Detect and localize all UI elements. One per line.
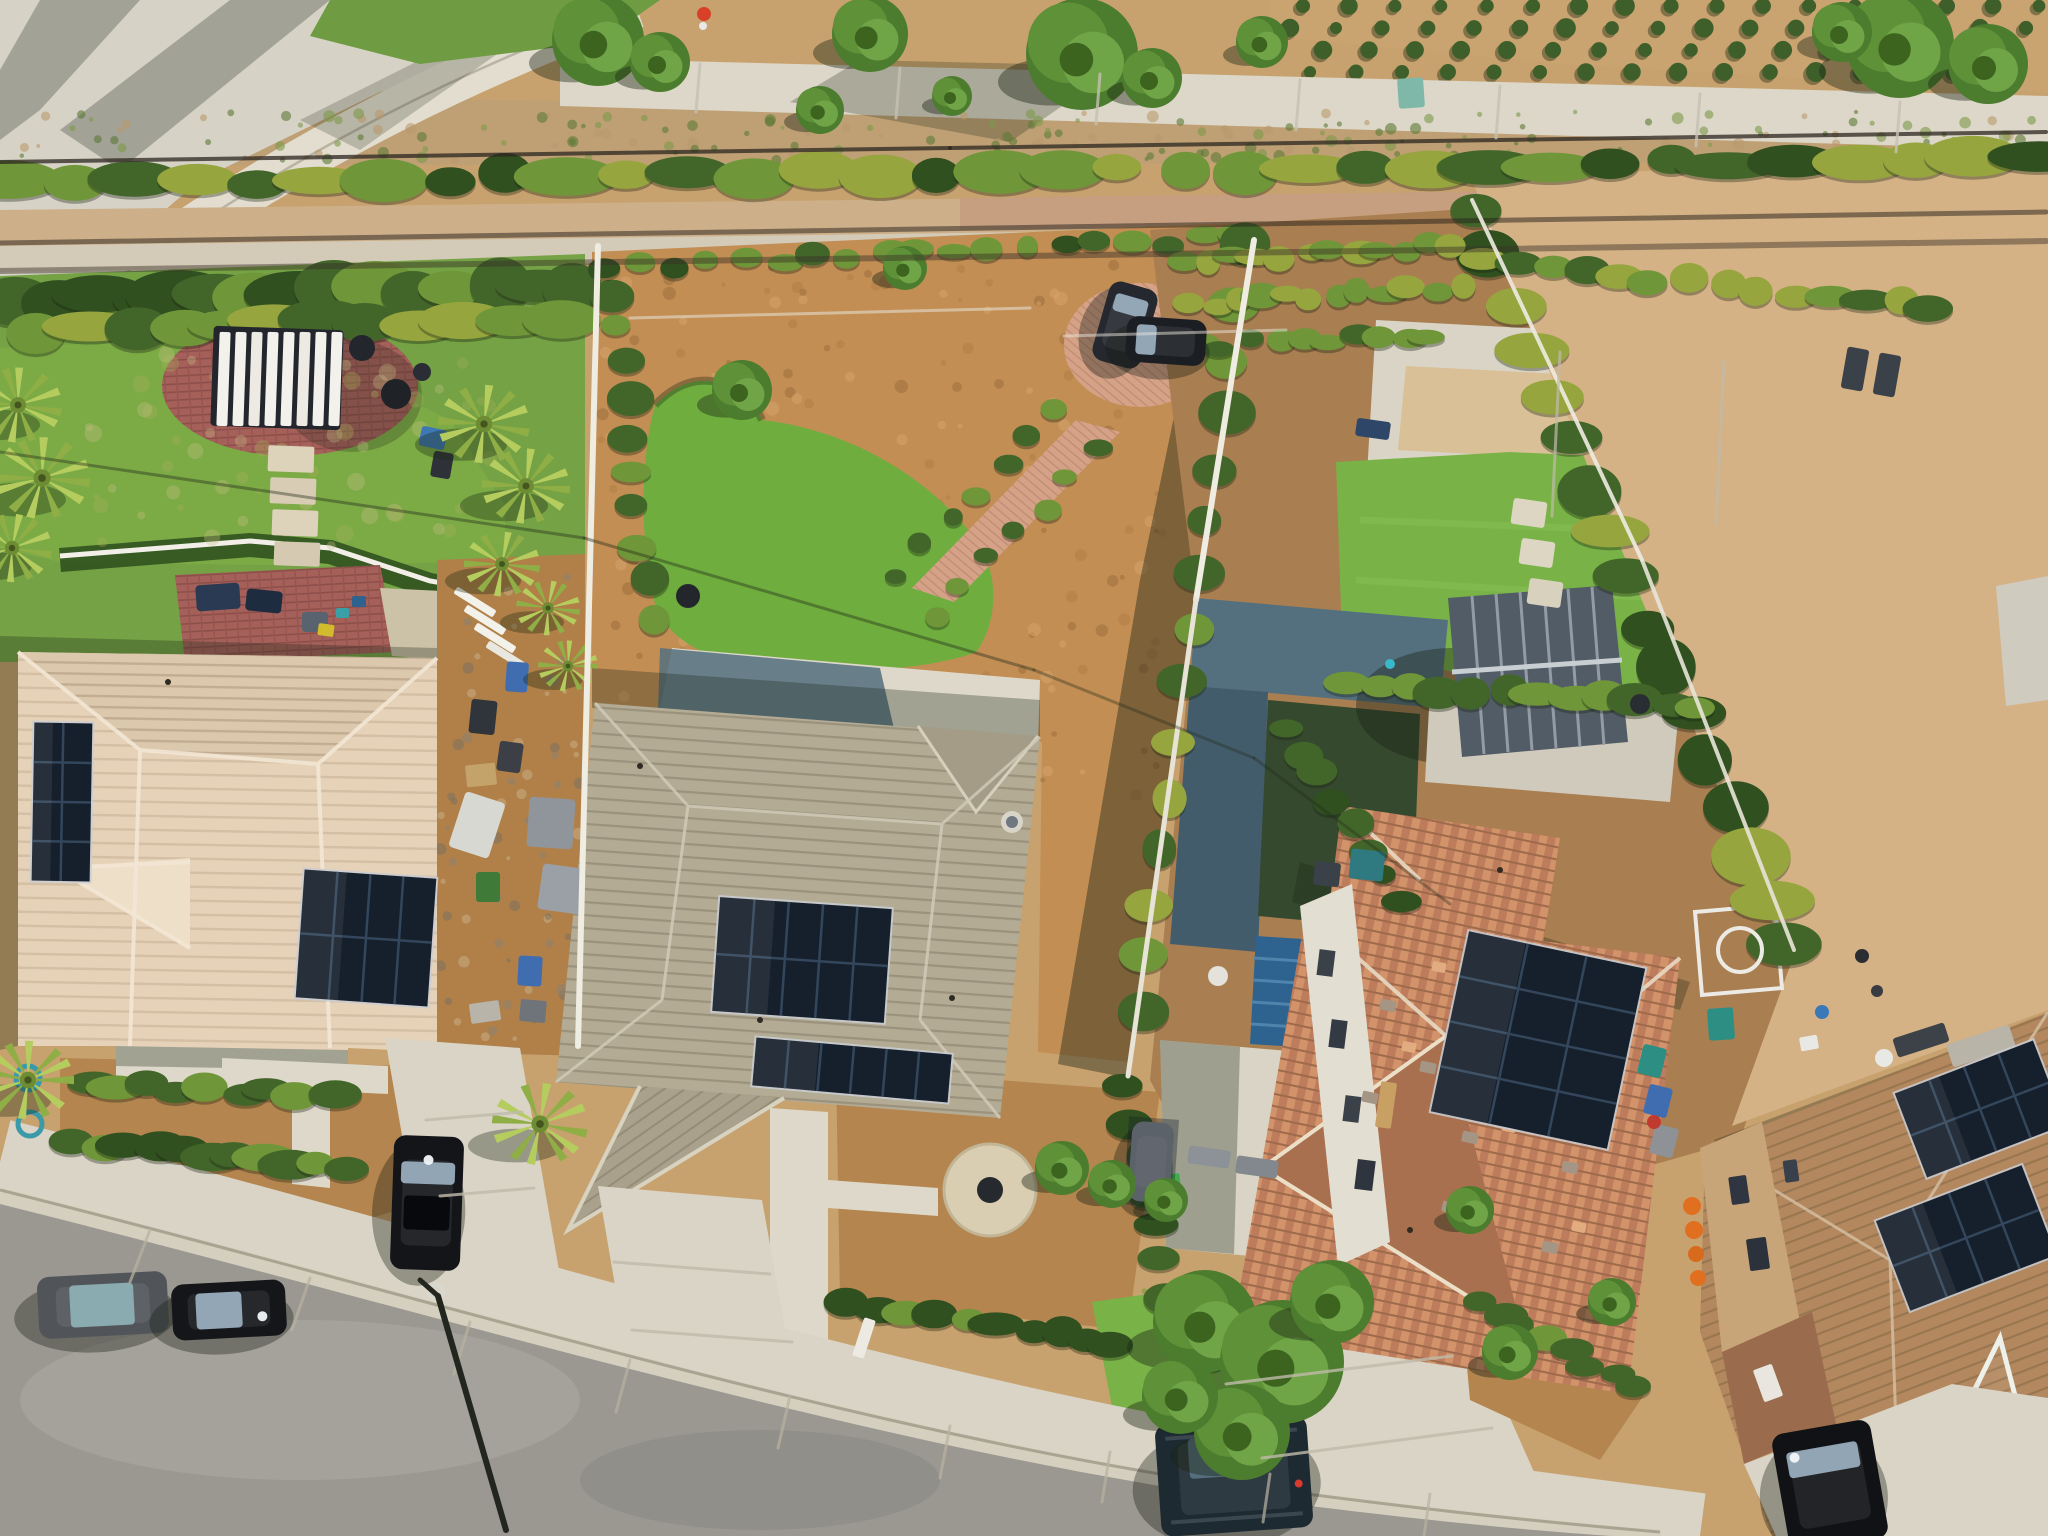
ground-speckle: [215, 480, 229, 494]
hedge: [1571, 515, 1650, 548]
object: [468, 699, 497, 736]
ground-speckle: [481, 124, 487, 130]
hedge: [615, 494, 648, 516]
ground-speckle: [799, 295, 808, 304]
ground-speckle: [422, 146, 428, 152]
ground-speckle: [1066, 591, 1078, 603]
tree-canopy-dark: [1602, 1297, 1616, 1311]
ground-speckle: [597, 408, 609, 420]
ground-speckle: [1708, 143, 1713, 148]
tree-canopy-dark: [1140, 72, 1158, 90]
object-round: [1630, 694, 1650, 714]
ground-speckle: [994, 379, 1004, 389]
hedge: [994, 455, 1024, 474]
ground-speckle: [334, 140, 341, 147]
hedge: [967, 1312, 1024, 1335]
ground-speckle: [373, 125, 383, 135]
ground-speckle: [1802, 113, 1808, 119]
object: [1510, 498, 1547, 528]
hedge: [1730, 881, 1815, 921]
orchard-tree: [1556, 18, 1576, 38]
ground-speckle: [924, 459, 934, 469]
ground-speckle: [1108, 260, 1119, 271]
hedge: [1541, 421, 1603, 454]
ground-speckle: [118, 127, 124, 133]
tree-canopy-dark: [1223, 1422, 1252, 1451]
ground-speckle: [462, 732, 473, 743]
hedge: [1435, 234, 1466, 258]
ground-speckle: [1446, 143, 1452, 149]
ground-speckle: [1699, 126, 1708, 135]
terra-wall-window: [1316, 949, 1335, 977]
ground-speckle: [358, 441, 369, 452]
ground-speckle: [509, 900, 520, 911]
ground-speckle: [1059, 640, 1066, 647]
ground-speckle: [1107, 575, 1119, 587]
ground-speckle: [1037, 301, 1042, 306]
tree-canopy-dark: [1830, 26, 1848, 44]
ground-speckle: [443, 524, 457, 538]
ground-speckle: [867, 125, 873, 131]
palm-crown-center: [480, 420, 487, 427]
ground-speckle: [187, 443, 203, 459]
hedge: [962, 487, 991, 505]
ground-speckle: [581, 124, 586, 129]
palm-crown-center: [566, 664, 571, 669]
object-round: [697, 7, 711, 21]
ground-speckle: [506, 958, 510, 962]
ground-speckle: [1051, 731, 1057, 737]
ground-speckle: [506, 856, 510, 860]
ground-speckle: [481, 1032, 490, 1041]
hedge: [1678, 734, 1732, 785]
object: [1397, 77, 1425, 109]
ground-speckle: [347, 473, 365, 491]
ground-speckle: [662, 127, 669, 134]
object: [268, 445, 315, 473]
palm-crown-center: [9, 545, 15, 551]
hedge: [639, 605, 670, 635]
ground-speckle: [1424, 114, 1434, 124]
orchard-tree: [2033, 0, 2046, 12]
orchard-tree: [1486, 64, 1501, 79]
ground-speckle: [569, 138, 576, 145]
hedge: [1172, 293, 1204, 313]
hedge: [631, 561, 670, 596]
hedge: [611, 462, 651, 483]
ground-speckle: [1870, 121, 1875, 126]
hedge: [908, 533, 932, 554]
hedge: [1137, 1246, 1179, 1270]
ground-speckle: [1903, 121, 1913, 131]
ground-speckle: [897, 434, 908, 445]
ground-speckle: [77, 110, 85, 118]
ground-speckle: [539, 852, 546, 859]
orchard-tree: [1533, 65, 1547, 79]
tree-canopy-dark: [1252, 37, 1268, 53]
ground-speckle: [133, 375, 150, 392]
ground-speckle: [804, 399, 814, 409]
ground-speckle: [187, 356, 196, 365]
ground-speckle: [1755, 126, 1762, 133]
ground-speckle: [864, 270, 872, 278]
ground-speckle: [1645, 118, 1652, 125]
object-round: [381, 379, 411, 409]
ground-speckle: [1516, 112, 1521, 117]
ground-speckle: [1078, 665, 1088, 675]
ground-speckle: [1045, 128, 1051, 134]
tree-canopy-dark: [1060, 43, 1094, 77]
hedge: [925, 607, 950, 627]
orchard-tree: [1591, 42, 1607, 58]
orchard-tree: [1421, 21, 1436, 36]
ground-speckle: [611, 621, 621, 631]
ground-speckle: [1385, 123, 1397, 135]
ground-speckle: [676, 348, 685, 357]
orchard-tree: [1545, 42, 1561, 58]
ground-speckle: [1286, 123, 1294, 131]
object-round: [1006, 816, 1018, 828]
tree-canopy-dark: [1315, 1294, 1340, 1319]
hedge: [522, 300, 601, 339]
ground-speckle: [449, 858, 457, 866]
ground-speckle: [1002, 132, 1012, 142]
object-round: [1685, 1221, 1703, 1239]
ground-speckle: [1026, 109, 1035, 118]
ground-speckle: [89, 117, 93, 121]
ground-speckle: [545, 913, 552, 920]
ground-speckle: [467, 689, 476, 698]
ground-speckle: [595, 122, 602, 129]
ground-speckle: [1118, 613, 1130, 625]
ground-speckle: [988, 120, 996, 128]
ground-speckle: [453, 739, 464, 750]
ground-speckle: [1040, 778, 1045, 783]
orchard-tree: [1440, 64, 1456, 80]
ground-speckle: [445, 998, 453, 1006]
ground-speckle: [36, 144, 40, 148]
palm-crown-center: [499, 561, 505, 567]
ground-speckle: [1988, 116, 1997, 125]
ground-speckle: [522, 770, 532, 780]
hedge: [1565, 1357, 1604, 1377]
ground-speckle: [963, 343, 974, 354]
ground-speckle: [375, 110, 385, 120]
orchard-tree: [1684, 43, 1698, 57]
ground-speckle: [462, 915, 471, 924]
ground-speckle: [405, 123, 416, 134]
object: [526, 796, 575, 849]
hedge: [309, 1080, 362, 1108]
hedge: [324, 1157, 369, 1181]
ground-speckle: [744, 131, 749, 136]
ground-speckle: [177, 504, 184, 511]
ground-speckle: [235, 435, 247, 447]
object-round: [1690, 1270, 1706, 1286]
ground-speckle: [1705, 110, 1714, 119]
object-round: [1683, 1197, 1701, 1215]
orchard-tree: [1512, 20, 1528, 36]
orchard-tree: [1395, 65, 1409, 79]
ground-speckle: [1364, 120, 1369, 125]
ground-speckle: [926, 136, 935, 145]
ground-speckle: [118, 143, 127, 152]
ground-speckle: [463, 662, 474, 673]
ground-speckle: [836, 340, 844, 348]
ground-speckle: [336, 525, 354, 543]
ground-speckle: [172, 436, 181, 445]
ground-speckle: [598, 436, 605, 443]
object-round: [637, 763, 643, 769]
ground-speckle: [986, 279, 993, 286]
ground-speckle: [721, 282, 726, 287]
ground-speckle: [443, 911, 453, 921]
hedge: [1521, 380, 1584, 415]
hedge: [340, 159, 429, 202]
ground-speckle: [516, 789, 526, 799]
solar-array: [710, 895, 894, 1025]
object-round: [349, 335, 375, 361]
tree-canopy-dark: [1257, 1350, 1294, 1387]
ground-speckle: [477, 396, 486, 405]
orchard-tree: [1435, 0, 1448, 12]
ground-speckle: [1113, 409, 1123, 419]
ground-speckle: [361, 507, 378, 524]
ground-speckle: [1145, 157, 1149, 161]
object: [476, 872, 500, 902]
ground-speckle: [602, 112, 612, 122]
ground-speckle: [433, 523, 445, 535]
object-round: [1875, 1049, 1893, 1067]
object-round: [977, 1177, 1003, 1203]
ground-speckle: [783, 369, 793, 379]
solar-glare: [32, 723, 53, 881]
hedge: [839, 155, 923, 198]
orchard-tree: [1330, 22, 1342, 34]
ground-speckle: [1854, 110, 1858, 114]
ground-speckle: [842, 124, 850, 132]
object: [336, 608, 349, 618]
ground-speckle: [1042, 766, 1053, 777]
ground-speckle: [565, 933, 572, 940]
hedge: [181, 1073, 228, 1102]
ground-speckle: [554, 781, 562, 789]
ground-speckle: [436, 960, 447, 971]
object-round: [165, 679, 171, 685]
hedge: [1161, 152, 1210, 189]
hedge: [1381, 891, 1422, 912]
object-round: [1647, 1115, 1661, 1129]
ground-speckle: [417, 132, 427, 142]
ground-speckle: [1026, 387, 1033, 394]
palm-crown-center: [536, 1120, 544, 1128]
orchard-tree: [1728, 41, 1746, 59]
object: [272, 509, 319, 537]
ground-speckle: [353, 108, 364, 119]
solar-glare: [712, 897, 775, 1015]
hedge: [1451, 677, 1490, 709]
orchard-tree: [2019, 21, 2033, 35]
ground-speckle: [567, 120, 577, 130]
ground-speckle: [440, 879, 445, 884]
palm-crown-center: [545, 605, 550, 610]
object-round: [413, 363, 431, 381]
ground-speckle: [1573, 110, 1577, 114]
orchard-tree: [1669, 63, 1688, 82]
ground-speckle: [281, 111, 291, 121]
orchard-tree: [1694, 18, 1713, 37]
tree-canopy-dark: [1157, 1196, 1170, 1209]
solar-array: [30, 720, 95, 883]
ground-speckle: [137, 402, 152, 417]
hedge: [1362, 326, 1396, 348]
ground-speckle: [765, 114, 776, 125]
object: [465, 762, 497, 787]
ground-speckle: [550, 743, 560, 753]
ground-speckle: [93, 498, 108, 513]
orchard-tree: [1360, 41, 1377, 58]
tree-canopy-dark: [1184, 1312, 1215, 1343]
object: [1526, 578, 1563, 608]
tree-canopy-dark: [580, 31, 608, 59]
orchard-tree: [1651, 21, 1665, 35]
ground-speckle: [1337, 121, 1342, 126]
ground-speckle: [41, 112, 50, 121]
ground-speckle: [941, 360, 947, 366]
ground-speckle: [1028, 623, 1041, 636]
ground-speckle: [227, 109, 234, 116]
ground-speckle: [1036, 138, 1044, 146]
ground-speckle: [1463, 135, 1467, 139]
hedge: [1093, 154, 1142, 180]
hedge: [1703, 781, 1769, 833]
tree-canopy-dark: [1499, 1346, 1516, 1363]
object: [496, 740, 524, 773]
hedge: [1903, 295, 1953, 322]
palm-crown-center: [522, 482, 529, 489]
ground-speckle: [593, 129, 602, 138]
ground-speckle: [108, 484, 117, 493]
tree-canopy-dark: [1102, 1179, 1116, 1193]
hedge: [1295, 288, 1321, 310]
ground-speckle: [545, 939, 553, 947]
object-round: [1855, 949, 1869, 963]
orchard-tree: [1605, 21, 1619, 35]
ground-speckle: [1264, 126, 1273, 135]
ground-speckle: [847, 274, 854, 281]
vehicle-windshield: [69, 1282, 135, 1327]
ground-speckle: [1055, 129, 1063, 137]
ground-speckle: [1312, 147, 1319, 154]
ground-speckle: [845, 372, 855, 382]
tree-canopy-dark: [855, 26, 878, 49]
ground-speckle: [1075, 118, 1080, 123]
ground-speckle: [895, 380, 908, 393]
object: [270, 477, 317, 505]
ground-speckle: [122, 120, 131, 129]
orchard-tree: [1304, 66, 1316, 78]
object-round: [949, 995, 955, 1001]
object: [519, 999, 547, 1023]
ground-speckle: [166, 485, 180, 499]
hedge: [1002, 522, 1025, 540]
ground-speckle: [1176, 118, 1184, 126]
ground-speckle: [204, 529, 220, 545]
ground-speckle: [687, 120, 698, 131]
ground-speckle: [1324, 123, 1328, 127]
object: [317, 623, 335, 637]
vehicle-windshield: [1135, 324, 1157, 355]
ground-speckle: [600, 128, 611, 139]
ground-speckle: [1029, 454, 1036, 461]
orchard-tree: [1314, 41, 1333, 60]
tree-canopy-dark: [1460, 1205, 1474, 1219]
ground-speckle: [501, 140, 507, 146]
ground-speckle: [1041, 528, 1047, 534]
hedge: [1386, 275, 1424, 298]
hedge: [1407, 330, 1445, 345]
ground-speckle: [570, 741, 578, 749]
ground-speckle: [474, 653, 480, 659]
hedge: [1423, 283, 1454, 302]
ground-speckle: [447, 793, 455, 801]
object: [195, 582, 241, 611]
ground-speckle: [205, 139, 211, 145]
ground-speckle: [792, 282, 803, 293]
ground-speckle: [437, 812, 444, 819]
hedge: [1581, 149, 1640, 180]
ground-speckle: [445, 825, 449, 829]
orchard-tree: [1638, 43, 1652, 57]
ground-speckle: [1049, 289, 1059, 299]
object-round: [1407, 1227, 1413, 1233]
ground-speckle: [641, 115, 648, 122]
object-round: [757, 1017, 763, 1023]
hedge: [1269, 719, 1303, 737]
ground-speckle: [327, 541, 336, 550]
solar-glare: [752, 1038, 819, 1091]
ground-speckle: [938, 421, 947, 430]
orchard-tree: [1623, 63, 1641, 81]
hedge: [1078, 231, 1111, 251]
ground-speckle: [494, 939, 503, 948]
ground-speckle: [1321, 109, 1331, 119]
ground-speckle: [323, 110, 335, 122]
palm-crown-center: [24, 1076, 31, 1083]
ground-speckle: [1125, 525, 1134, 534]
aerial-photo: [0, 0, 2048, 1536]
orchard-tree: [1349, 65, 1364, 80]
ground-speckle: [792, 393, 803, 404]
vehicle-windshield: [195, 1291, 243, 1329]
ground-speckle: [158, 347, 174, 363]
hedge: [1087, 1332, 1133, 1358]
ground-speckle: [958, 298, 962, 302]
orchard-tree: [1466, 20, 1482, 36]
ground-speckle: [1096, 624, 1108, 636]
ground-speckle: [1375, 128, 1383, 136]
ground-speckle: [343, 372, 361, 390]
hedge: [1738, 277, 1772, 306]
hedge: [1084, 439, 1114, 456]
hedge: [607, 381, 654, 416]
ground-speckle: [1154, 134, 1163, 143]
ground-speckle: [94, 135, 102, 143]
ground-speckle: [458, 956, 470, 968]
ground-speckle: [435, 384, 444, 393]
solar-array: [294, 867, 439, 1008]
object-round: [1871, 985, 1883, 997]
